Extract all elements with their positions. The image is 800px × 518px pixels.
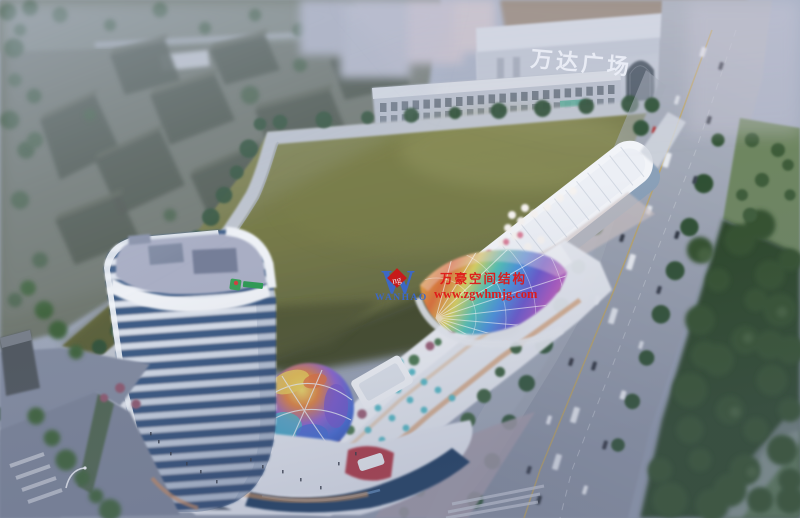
svg-text:WANHAO: WANHAO	[375, 293, 428, 303]
svg-text:万豪空间结构: 万豪空间结构	[439, 271, 527, 286]
svg-text:www.zgwhmjg.com: www.zgwhmjg.com	[434, 287, 538, 301]
